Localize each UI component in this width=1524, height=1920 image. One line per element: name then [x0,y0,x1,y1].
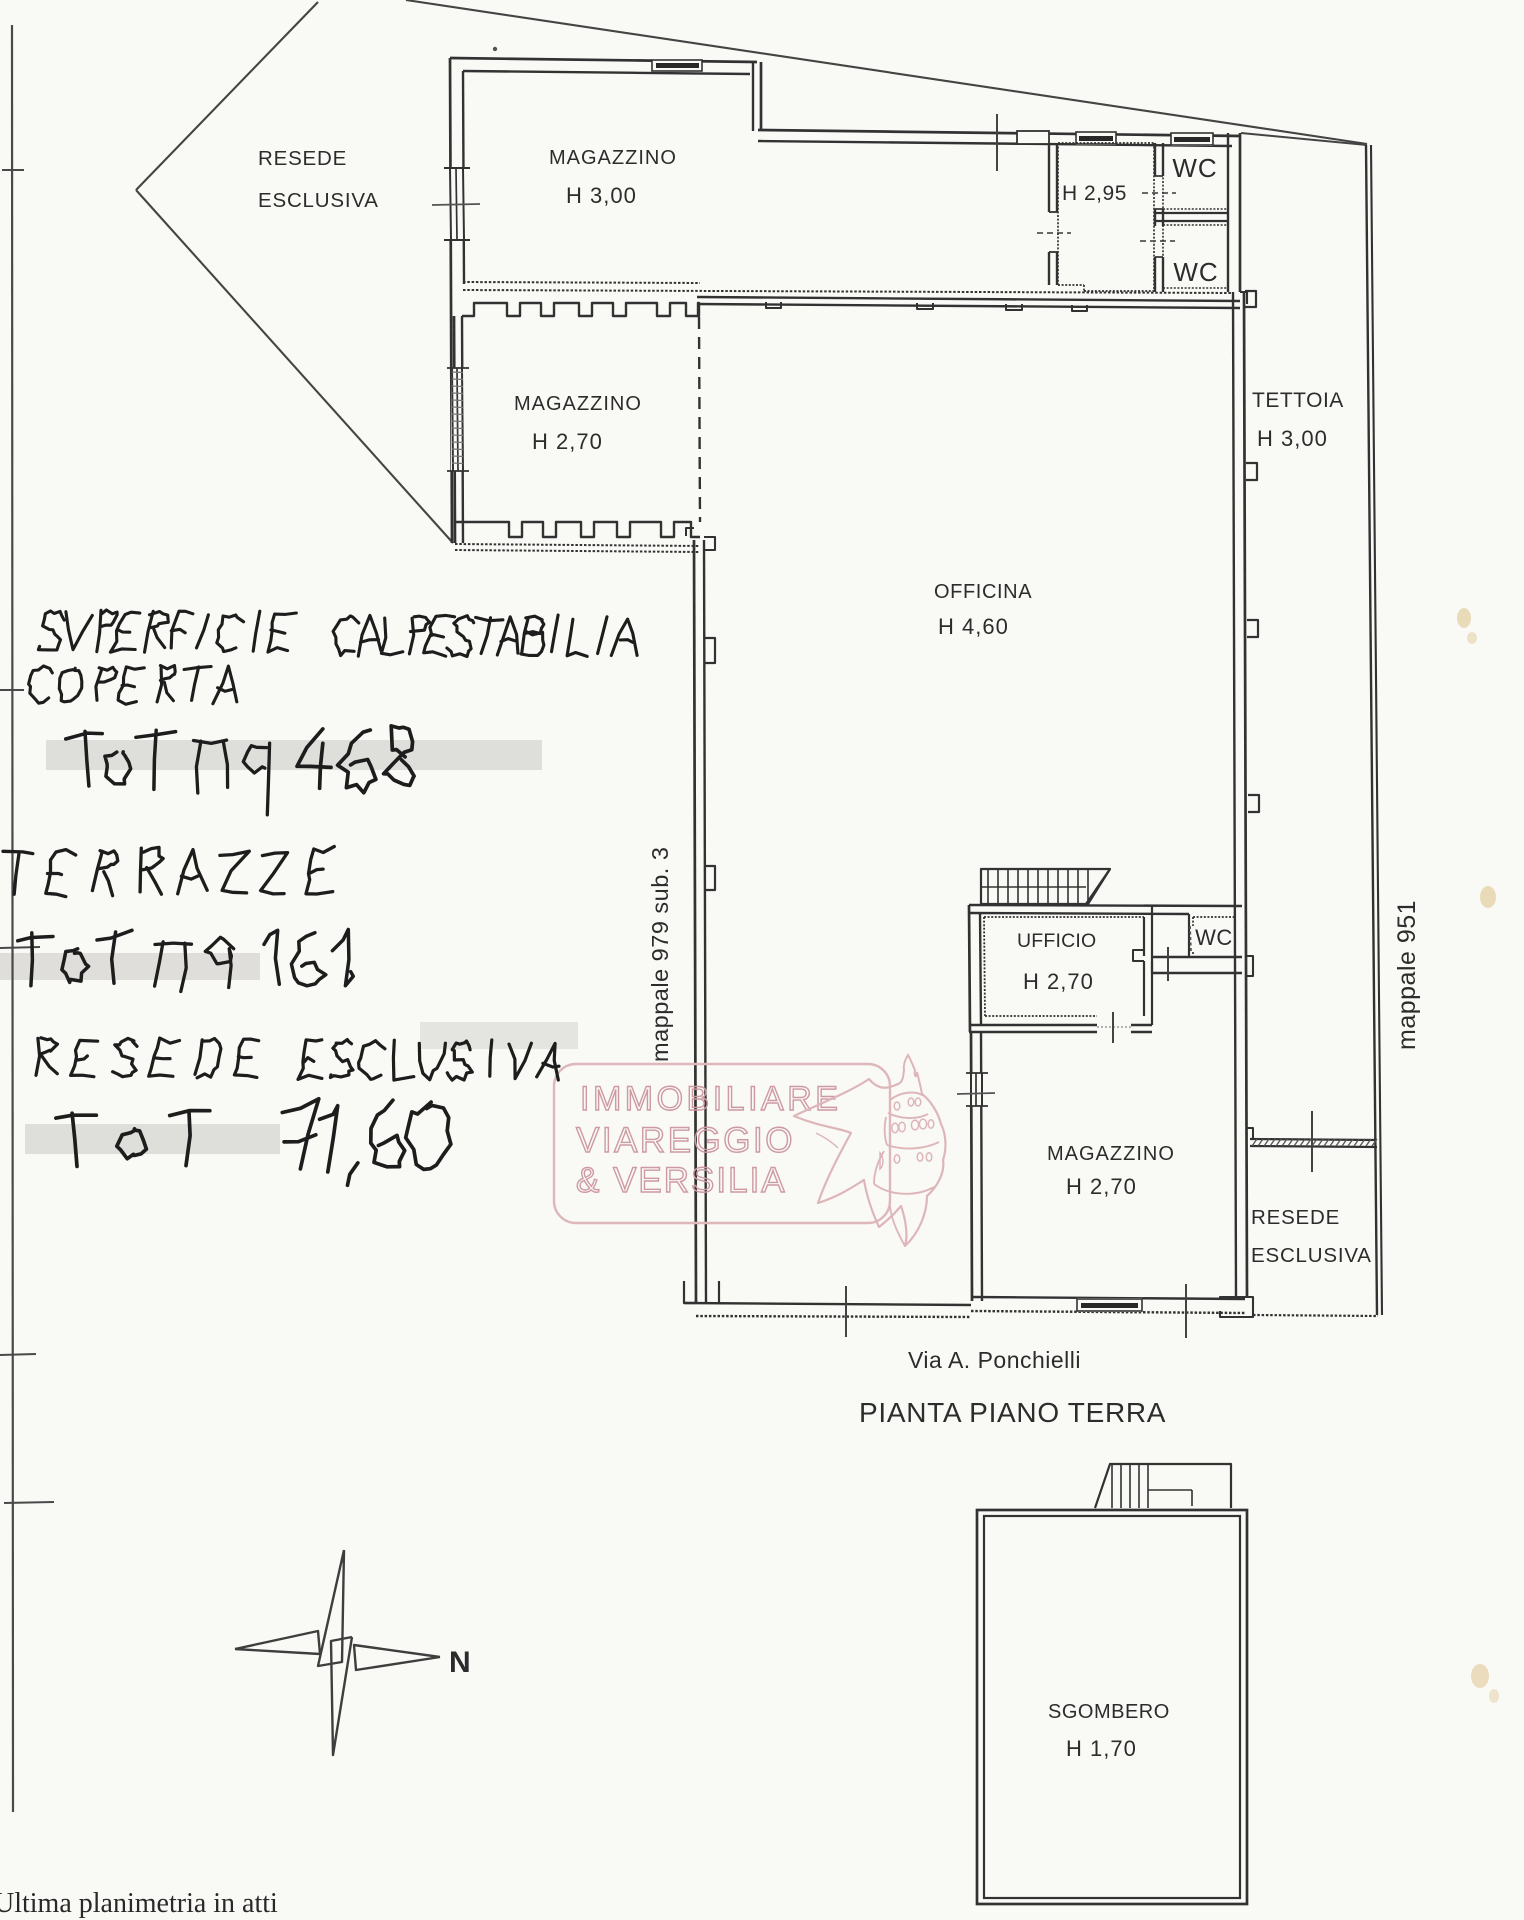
svg-text:mappale 951: mappale 951 [1393,900,1421,1050]
svg-text:ESCLUSIVA: ESCLUSIVA [258,189,379,212]
svg-text:MAGAZZINO: MAGAZZINO [514,393,642,415]
svg-text:H 4,60: H 4,60 [938,614,1009,639]
svg-text:H 2,70: H 2,70 [1066,1174,1137,1199]
svg-text:N: N [449,1646,471,1679]
svg-text:ESCLUSIVA: ESCLUSIVA [1251,1244,1372,1267]
svg-text:VIAREGGIO: VIAREGGIO [576,1121,795,1160]
svg-text:MAGAZZINO: MAGAZZINO [549,147,677,169]
svg-text:MAGAZZINO: MAGAZZINO [1047,1143,1175,1165]
svg-text:H 2,70: H 2,70 [1023,969,1094,994]
svg-text:mappale 979 sub. 3: mappale 979 sub. 3 [647,847,673,1062]
svg-text:Ultima planimetria in atti: Ultima planimetria in atti [0,1888,278,1919]
svg-text:RESEDE: RESEDE [1251,1206,1340,1229]
svg-text:OFFICINA: OFFICINA [934,581,1032,603]
svg-text:Via A. Ponchielli: Via A. Ponchielli [908,1347,1081,1373]
svg-text:H 1,70: H 1,70 [1066,1736,1137,1761]
svg-text:RESEDE: RESEDE [258,147,347,170]
svg-text:H 2,95: H 2,95 [1062,182,1127,205]
svg-text:H 3,00: H 3,00 [566,183,637,208]
svg-text:SGOMBERO: SGOMBERO [1048,1701,1170,1723]
svg-text:UFFICIO: UFFICIO [1017,930,1096,952]
svg-text:TETTOIA: TETTOIA [1252,389,1344,412]
svg-text:WC: WC [1195,925,1233,950]
svg-text:H 3,00: H 3,00 [1257,426,1328,451]
svg-text:WC: WC [1173,257,1218,287]
svg-text:H 2,70: H 2,70 [532,429,603,454]
svg-text:WC: WC [1172,153,1217,183]
svg-text:& VERSILIA: & VERSILIA [576,1161,787,1200]
svg-text:PIANTA PIANO TERRA: PIANTA PIANO TERRA [859,1397,1166,1428]
